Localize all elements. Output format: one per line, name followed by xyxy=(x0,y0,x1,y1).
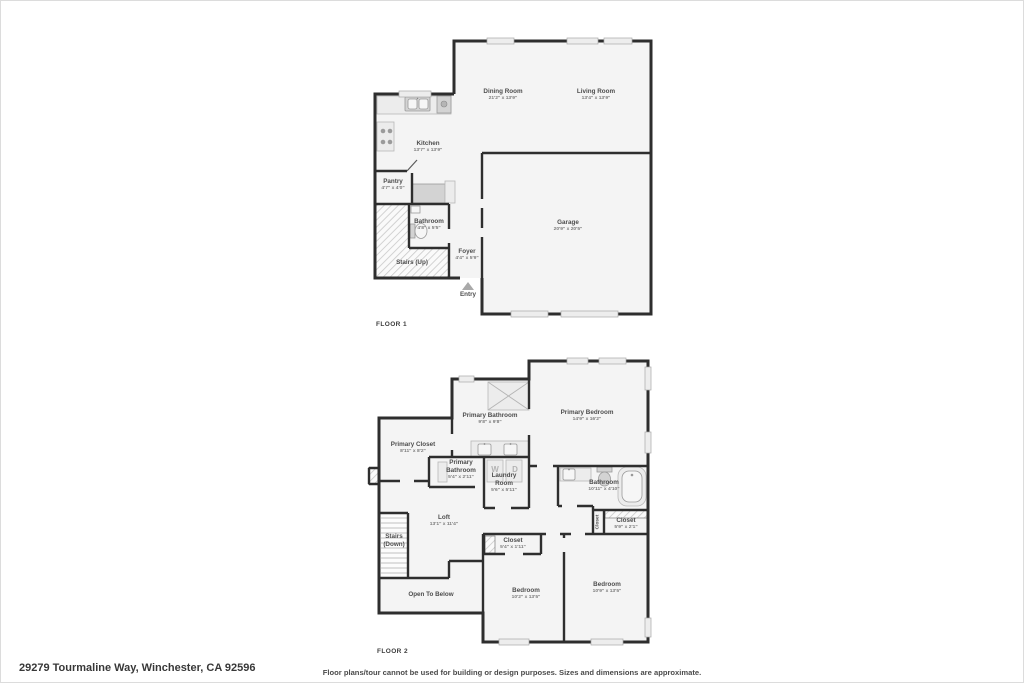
room-label-bedroom-left: Bedroom 10'2" x 13'5" xyxy=(512,587,541,601)
counter xyxy=(445,181,455,203)
floorplan-page: Dining Room 21'2" x 13'9" Living Room 13… xyxy=(0,0,1024,683)
room-dims: 21'2" x 13'9" xyxy=(483,96,522,102)
cooktop xyxy=(377,122,394,151)
room-name: Dining Room xyxy=(483,88,522,96)
floor1-rooms-fill xyxy=(375,41,651,314)
entry-arrow-icon xyxy=(462,282,474,290)
room-name: Primary Bathroom xyxy=(443,459,479,475)
room-label-closet-hall: Closet xyxy=(596,515,601,530)
kitchen-island xyxy=(412,184,445,203)
room-label-closet-right: Closet 5'9" x 2'1" xyxy=(614,517,637,531)
room-name: Bathroom xyxy=(588,479,619,487)
room-name: Loft xyxy=(430,514,458,522)
room-name: Closet xyxy=(500,537,526,545)
dryer-label: D xyxy=(512,465,518,474)
room-dims: 14'9" x 16'2" xyxy=(561,417,614,423)
room-name: Bedroom xyxy=(593,581,622,589)
room-label-loft: Loft 13'1" x 11'4" xyxy=(430,514,458,528)
room-label-bathroom: Bathroom 4'8" x 5'5" xyxy=(414,218,444,232)
room-dims: 13'1" x 11'4" xyxy=(430,522,458,528)
bath-sink xyxy=(411,206,420,213)
floor1-tag: FLOOR 1 xyxy=(376,321,407,328)
room-dims: 20'9" x 20'5" xyxy=(554,227,583,233)
room-name: Bathroom xyxy=(414,218,444,226)
room-label-kitchen: Kitchen 13'7" x 13'9" xyxy=(414,140,443,154)
room-dims: 4'4" x 5'9" xyxy=(455,256,478,262)
room-name: Kitchen xyxy=(414,140,443,148)
room-label-laundry-room: Laundry Room 5'6" x 5'11" xyxy=(489,472,519,494)
toilet-tank xyxy=(597,467,612,472)
room-label-primary-bathroom-2: Primary Bathroom 5'4" x 2'11" xyxy=(443,459,479,481)
room-label-bedroom-right: Bedroom 10'9" x 13'5" xyxy=(593,581,622,595)
room-name: Bedroom xyxy=(512,587,541,595)
room-dims: 5'6" x 5'11" xyxy=(489,488,519,494)
room-name: Primary Bathroom xyxy=(463,412,518,420)
room-dims: 4'8" x 5'5" xyxy=(414,226,444,232)
room-label-dining-room: Dining Room 21'2" x 13'9" xyxy=(483,88,522,102)
room-label-open-to-below: Open To Below xyxy=(408,591,453,599)
room-name: Laundry Room xyxy=(489,472,519,488)
room-label-pantry: Pantry 4'7" x 4'0" xyxy=(381,178,404,192)
room-name: Living Room xyxy=(577,88,615,96)
room-name: Closet xyxy=(614,517,637,525)
room-label-bathroom-2: Bathroom 10'11" x 4'10" xyxy=(588,479,619,493)
washer-label: W xyxy=(491,465,499,474)
room-label-foyer: Foyer 4'4" x 5'9" xyxy=(455,248,478,262)
room-name: Stairs (Down) xyxy=(379,533,409,549)
room-dims: 10'11" x 4'10" xyxy=(588,487,619,493)
room-dims: 10'9" x 13'5" xyxy=(593,589,622,595)
disclaimer-text: Floor plans/tour cannot be used for buil… xyxy=(1,668,1023,677)
room-label-primary-bedroom: Primary Bedroom 14'9" x 16'2" xyxy=(561,409,614,423)
room-dims: 5'4" x 1'11" xyxy=(500,545,526,551)
room-dims: 4'7" x 4'0" xyxy=(381,186,404,192)
room-label-entry: Entry xyxy=(460,291,476,299)
room-dims: 9'8" x 9'8" xyxy=(463,420,518,426)
room-dims: 13'4" x 13'9" xyxy=(577,96,615,102)
floor2-tag: FLOOR 2 xyxy=(377,648,408,655)
room-dims: 10'2" x 13'5" xyxy=(512,595,541,601)
room-name: Stairs (Up) xyxy=(396,259,428,267)
room-label-garage: Garage 20'9" x 20'5" xyxy=(554,219,583,233)
room-dims: 5'4" x 2'11" xyxy=(443,475,479,481)
room-name: Foyer xyxy=(455,248,478,256)
room-name: Primary Closet xyxy=(391,441,435,449)
floor1-plan xyxy=(361,26,661,326)
room-name: Garage xyxy=(554,219,583,227)
room-label-primary-closet: Primary Closet 8'11" x 8'2" xyxy=(391,441,435,455)
closet-hatch xyxy=(485,536,495,553)
room-dims: 13'7" x 13'9" xyxy=(414,148,443,154)
room-label-closet-mid: Closet 5'4" x 1'11" xyxy=(500,537,526,551)
room-name: Open To Below xyxy=(408,591,453,599)
room-label-primary-bathroom: Primary Bathroom 9'8" x 9'8" xyxy=(463,412,518,426)
room-name: Pantry xyxy=(381,178,404,186)
room-label-stairs-up: Stairs (Up) xyxy=(396,259,428,267)
floor2-plan xyxy=(361,351,661,651)
room-label-stairs-down: Stairs (Down) xyxy=(379,533,409,549)
room-dims: 8'11" x 8'2" xyxy=(391,449,435,455)
room-dims: 5'9" x 2'1" xyxy=(614,525,637,531)
room-name: Entry xyxy=(460,291,476,299)
room-label-living-room: Living Room 13'4" x 13'9" xyxy=(577,88,615,102)
room-name: Primary Bedroom xyxy=(561,409,614,417)
